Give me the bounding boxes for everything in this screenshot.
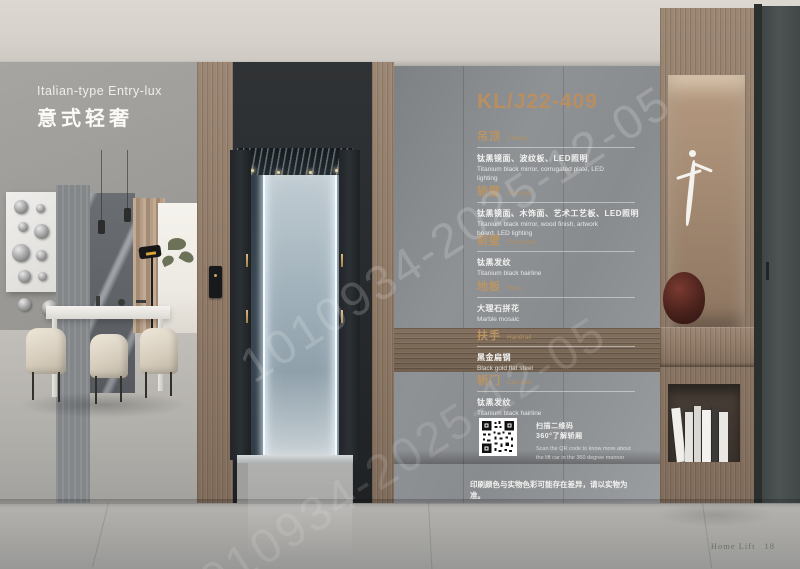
- qr-caption-en-1: Scan the QR code to know more about: [536, 445, 646, 453]
- spec-label-en: Front wall: [507, 239, 535, 246]
- disclaimer-cn: 印刷颜色与实物色彩可能存在差异，请以实物为准。: [470, 479, 635, 501]
- knob-sample: [34, 224, 49, 239]
- elevator-ceiling-panel: [237, 148, 353, 175]
- elevator-sill: [237, 455, 353, 463]
- door-frame: [754, 4, 762, 503]
- pendant-light-shade: [124, 208, 131, 222]
- knob-sample: [38, 272, 47, 281]
- spec-section-front-wall: 前壁 Front wall 钛黑发纹 Titanium black hairli…: [477, 232, 643, 278]
- knob-sample: [12, 244, 30, 262]
- pendant-light-shade: [98, 220, 105, 234]
- dining-chair: [26, 328, 66, 374]
- spec-label-cn: 地板: [477, 278, 501, 294]
- qr-caption: 扫描二维码 360°了解轿厢 Scan the QR code to know …: [536, 422, 646, 462]
- spec-value-cn: 大理石拼花: [477, 303, 643, 314]
- series-subtitle: Italian-type Entry-lux: [37, 84, 162, 98]
- knob-sample: [36, 204, 45, 213]
- book: [719, 412, 728, 462]
- pendant-light: [127, 150, 128, 210]
- qr-caption-en-2: the lift car in the 360 degree manner: [536, 454, 646, 462]
- spec-label-en: Ceiling: [507, 135, 527, 142]
- handle-sample-board: [6, 192, 56, 292]
- knob-sample: [18, 222, 28, 232]
- page-footer: Home Lift18: [711, 541, 775, 551]
- sculpture-head: [689, 150, 696, 157]
- book: [712, 407, 718, 462]
- dining-chair: [140, 328, 178, 374]
- book: [685, 412, 693, 462]
- knob-sample: [14, 200, 28, 214]
- qr-caption-cn-1: 扫描二维码: [536, 422, 646, 432]
- book: [694, 406, 701, 462]
- book: [702, 410, 711, 462]
- spec-value-en: Titanium black hairline: [477, 269, 607, 278]
- model-number: KL/J22-409: [477, 90, 598, 114]
- shelf-lower-niche: [668, 384, 740, 462]
- knob-sample: [18, 298, 31, 311]
- entry-door[interactable]: [762, 6, 800, 503]
- spec-section-floor: 地板 Floor 大理石拼花 Marble mosaic: [477, 278, 643, 324]
- pendant-light: [101, 150, 102, 222]
- spec-label-en: Floor: [507, 285, 522, 292]
- shelf-floor-shadow: [655, 503, 775, 527]
- spec-label-cn: 吊顶: [477, 128, 501, 144]
- dining-table: [46, 306, 170, 319]
- table-item: [96, 296, 100, 306]
- page-number: 18: [765, 541, 776, 551]
- furniture-shadow: [18, 392, 188, 418]
- series-title: 意式轻奢: [37, 102, 133, 131]
- led-strip-left: [263, 172, 265, 458]
- knob-sample: [36, 250, 47, 261]
- spec-label-cn: 扶手: [477, 327, 501, 343]
- elevator-call-button[interactable]: [209, 266, 222, 298]
- spec-value-cn: 钛黑发纹: [477, 257, 643, 268]
- book: [671, 408, 686, 463]
- spec-label-en: Handrail: [507, 334, 531, 341]
- vase: [663, 272, 705, 324]
- qr-caption-cn-2: 360°了解轿厢: [536, 432, 646, 442]
- dining-chair: [90, 334, 128, 378]
- catalog-page: KL/J22-409 吊顶 Ceiling 钛黑镜面、波纹板、LED照明 Tit…: [0, 0, 800, 569]
- plant: [168, 238, 186, 250]
- knob-sample: [18, 270, 31, 283]
- table-item: [136, 300, 146, 303]
- elevator-door-left[interactable]: [230, 150, 251, 460]
- table-item: [118, 299, 125, 306]
- door-handle: [766, 262, 769, 280]
- footer-brand: Home Lift: [711, 541, 756, 551]
- shelf-drawer[interactable]: [660, 327, 758, 367]
- spec-divider: [477, 297, 635, 298]
- spec-divider: [477, 251, 635, 252]
